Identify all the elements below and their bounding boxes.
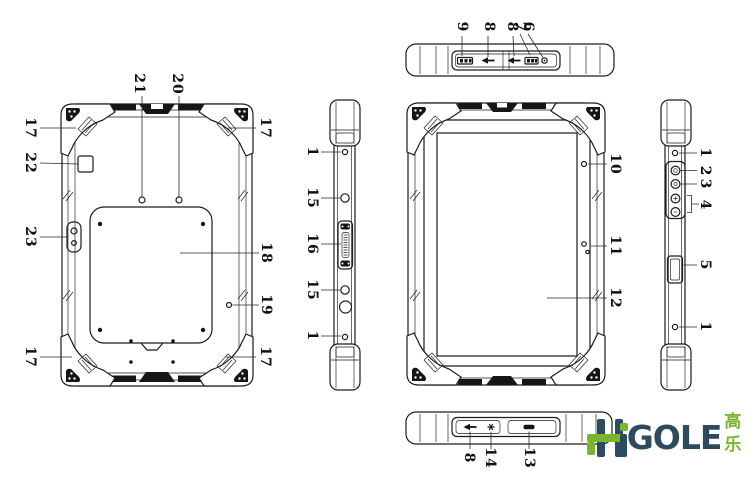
callout-back-17-bl: 17 (22, 346, 38, 367)
logo-chinese-text: 高乐 (724, 411, 750, 457)
mic-hole-21 (139, 197, 145, 203)
hdmi-port-9 (458, 58, 473, 65)
logo-h-plus-symbol (594, 419, 619, 457)
callout-back-23: 23 (22, 226, 38, 247)
callout-bottom-14: 14 (482, 447, 498, 468)
callout-back-17-tr: 17 (257, 117, 273, 138)
sensor-dot-11b (586, 250, 589, 253)
callout-bottom-13: 13 (521, 447, 537, 468)
callout-top-8a: 8 (481, 22, 497, 33)
callout-top-6: 6 (520, 22, 536, 33)
side-view-right (661, 100, 699, 390)
callout-right-5: 5 (697, 260, 713, 271)
callout-back-17-br: 17 (257, 346, 273, 367)
usb-port-icon-8b (508, 57, 521, 63)
port-13 (524, 425, 535, 429)
dc-jack-6 (542, 58, 547, 63)
bottom-edge-view (406, 412, 612, 449)
logo-gole-text: GOLE (627, 419, 722, 457)
sensor-dot-11a (582, 242, 587, 247)
usb-port-icon-8a (482, 57, 495, 63)
brand-logo: GOLE 高乐 (594, 411, 750, 457)
callout-left-16: 16 (304, 233, 320, 254)
callout-left-1a: 1 (304, 147, 320, 158)
side-view-left (321, 100, 360, 390)
tablet-six-view-line-art (0, 0, 750, 478)
port-7 (525, 58, 538, 65)
callout-top-9: 9 (454, 22, 470, 33)
callout-right-1b: 1 (697, 322, 713, 333)
top-edge-view (406, 34, 614, 76)
callout-back-21: 21 (131, 73, 147, 94)
display-screen-12 (437, 133, 577, 356)
logo-i-glyph (619, 419, 626, 457)
front-view (407, 103, 607, 385)
front-bezel (424, 120, 590, 366)
port-14-icon (488, 424, 495, 430)
callout-left-15b: 15 (304, 279, 320, 300)
callout-right-2: 2 (697, 166, 713, 177)
mic-hole-20 (176, 197, 182, 203)
callout-back-18: 18 (258, 242, 274, 263)
usb-port-icon-8c (464, 424, 477, 430)
back-view (40, 96, 259, 386)
battery-cover (90, 207, 212, 350)
back-square-22 (78, 156, 93, 172)
callout-left-15a: 15 (304, 187, 320, 208)
back-hole-19 (227, 303, 232, 308)
callout-right-1a: 1 (697, 148, 713, 159)
diagram-page: 21 20 17 22 23 17 17 18 19 17 1 15 16 15… (0, 0, 750, 478)
callout-front-10: 10 (607, 153, 623, 174)
callout-left-1b: 1 (304, 331, 320, 342)
back-module-23 (67, 222, 81, 252)
callout-back-17-tl: 17 (22, 117, 38, 138)
callout-front-11: 11 (607, 235, 623, 256)
callout-front-12: 12 (607, 287, 623, 308)
callout-right-4: 4 (697, 200, 713, 211)
callout-back-22: 22 (22, 152, 38, 173)
callout-bottom-8: 8 (461, 453, 477, 464)
front-camera-10 (582, 162, 587, 167)
callout-back-20: 20 (169, 73, 185, 94)
callout-back-19: 19 (258, 294, 274, 315)
callout-right-3: 3 (697, 179, 713, 190)
